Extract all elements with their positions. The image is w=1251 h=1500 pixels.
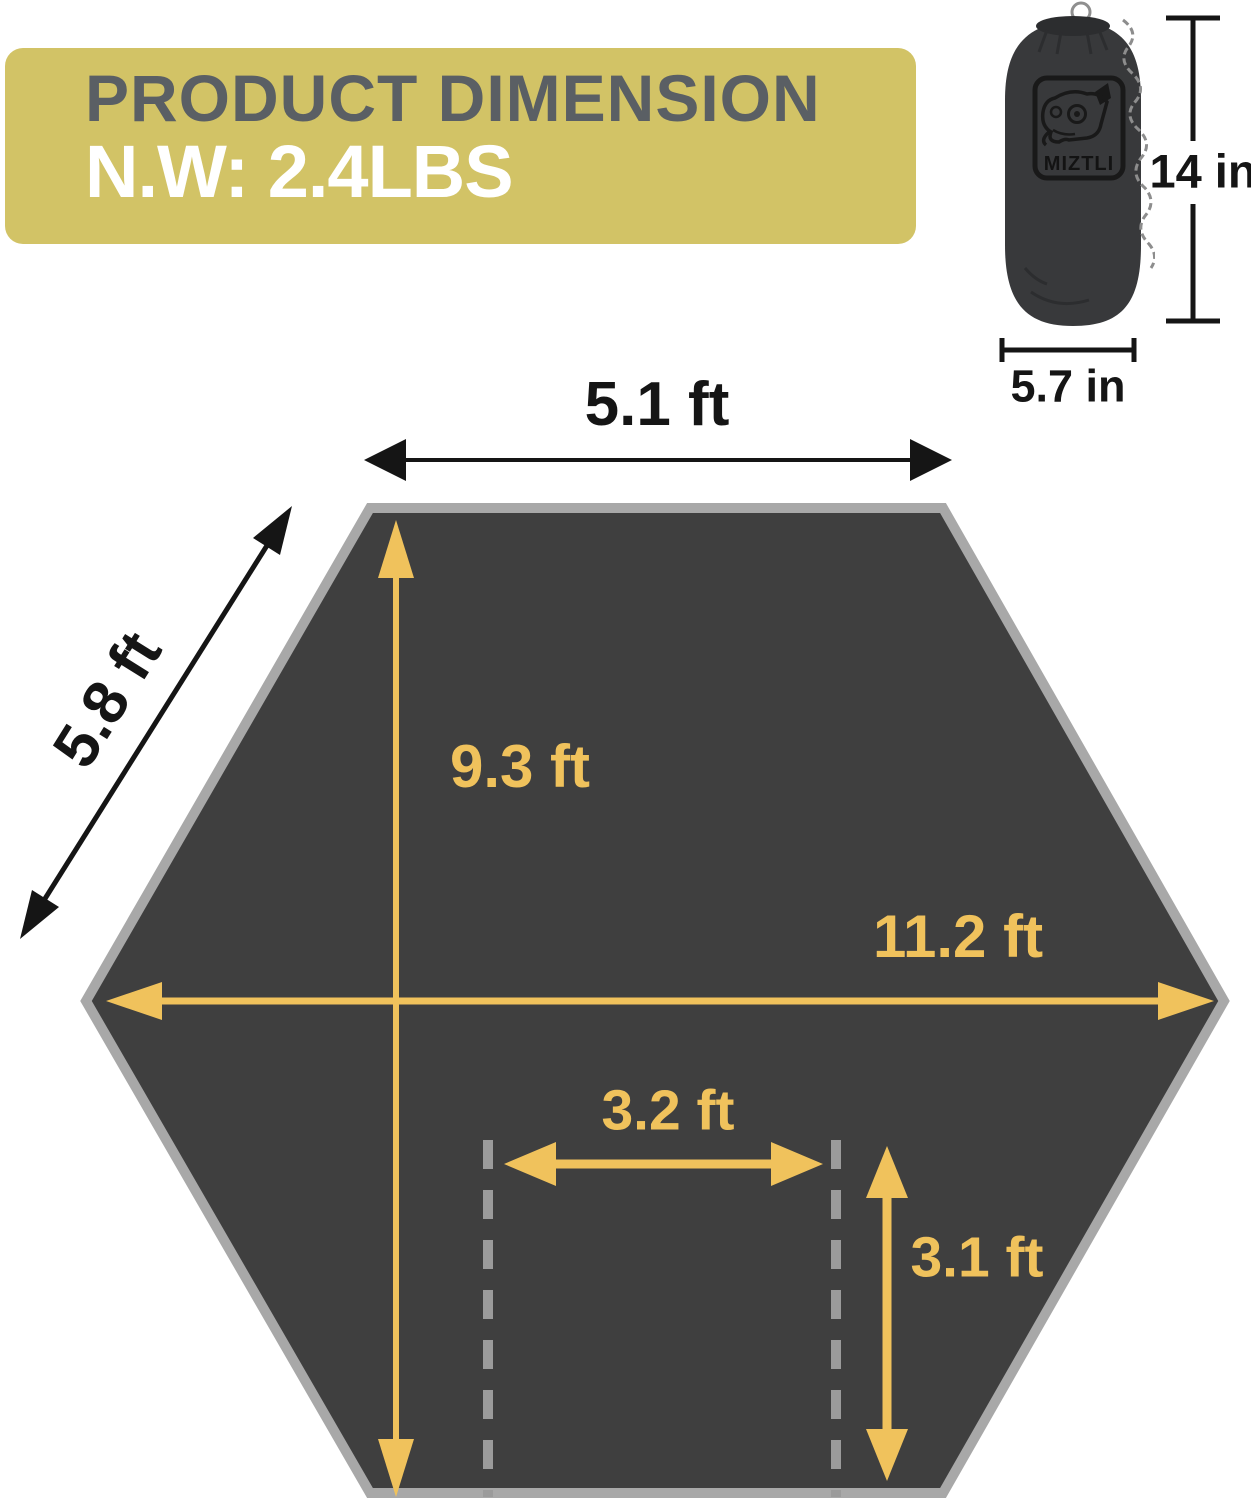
stuff-sack: MIZTLI [995,0,1155,345]
product-dimension-infographic: PRODUCT DIMENSION N.W: 2.4LBS [0,0,1251,1500]
inner-width-label: 3.2 ft [601,1083,734,1140]
brand-text: MIZTLI [1044,153,1114,175]
top-edge-label: 5.1 ft [585,374,730,436]
center-height-label: 9.3 ft [450,737,590,797]
sack-height-label: 14 in [1149,148,1251,195]
top-edge-arrow [364,439,952,481]
max-width-label: 11.2 ft [873,907,1043,967]
sack-width-label: 5.7 in [1010,364,1125,409]
inner-height-label: 3.1 ft [910,1230,1043,1287]
